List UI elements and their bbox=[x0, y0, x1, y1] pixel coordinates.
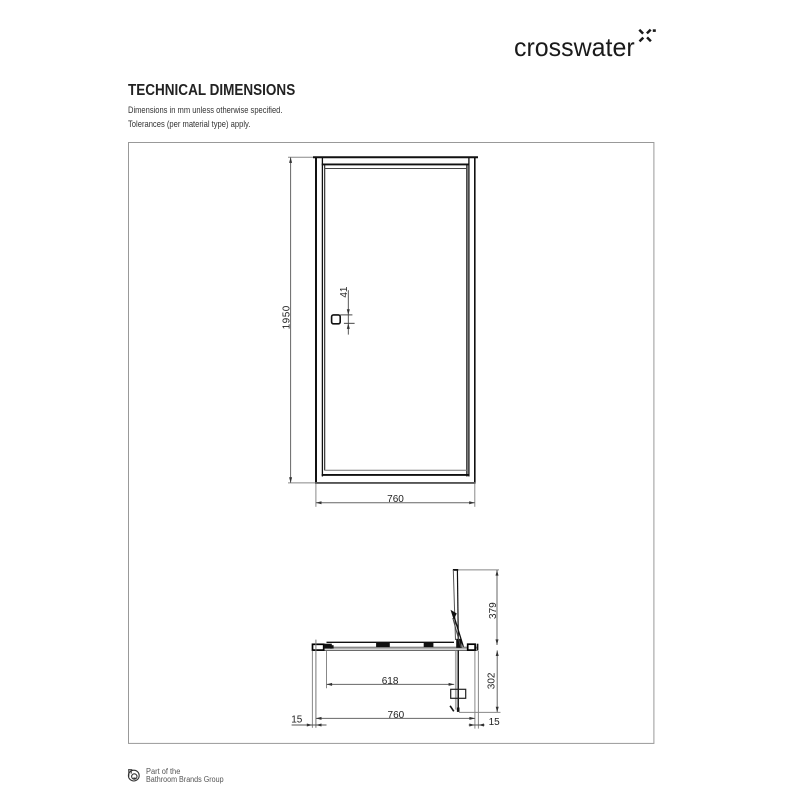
svg-text:41: 41 bbox=[339, 286, 350, 298]
svg-text:302: 302 bbox=[487, 672, 498, 689]
svg-text:1950: 1950 bbox=[282, 305, 293, 329]
svg-text:618: 618 bbox=[382, 676, 399, 687]
svg-text:760: 760 bbox=[388, 710, 405, 721]
svg-text:379: 379 bbox=[488, 602, 499, 619]
svg-text:760: 760 bbox=[387, 494, 404, 505]
svg-text:15: 15 bbox=[291, 715, 303, 726]
svg-text:15: 15 bbox=[489, 717, 501, 728]
